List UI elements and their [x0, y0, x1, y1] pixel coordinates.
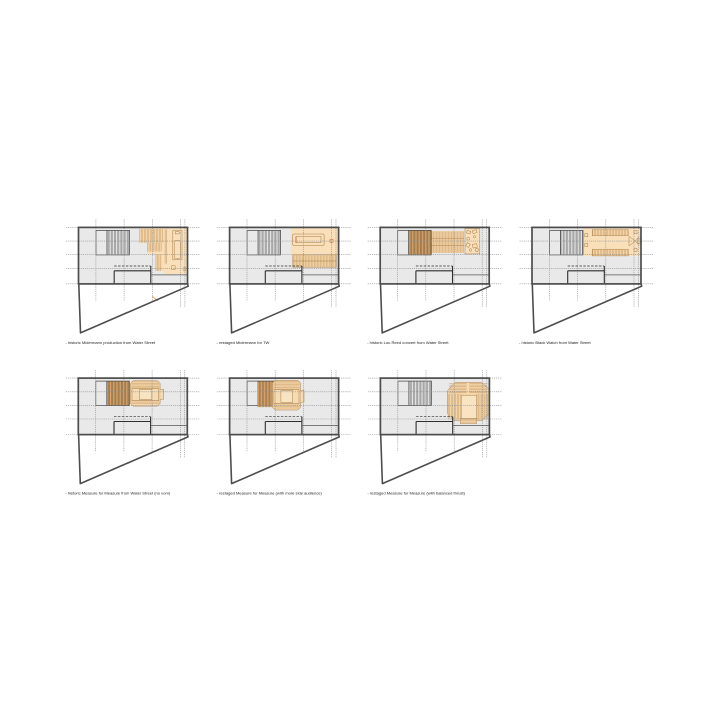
svg-text:- restaged Midermann for TW: - restaged Midermann for TW	[217, 340, 270, 345]
svg-text:- historic Midermann productio: - historic Midermann production from Wat…	[66, 340, 156, 345]
svg-text:- historic Black Watch from Wa: - historic Black Watch from Water Street	[519, 340, 592, 345]
svg-text:- restaged Measure for Measure: - restaged Measure for Measure (with bal…	[367, 491, 465, 496]
svg-text:- restaged Measure for Measure: - restaged Measure for Measure (with mor…	[217, 491, 323, 496]
svg-text:- historic Lou Reed concert fr: - historic Lou Reed concert from Water S…	[367, 340, 449, 345]
svg-text:- historic Measure for Measure: - historic Measure for Measure from Wate…	[65, 491, 171, 496]
